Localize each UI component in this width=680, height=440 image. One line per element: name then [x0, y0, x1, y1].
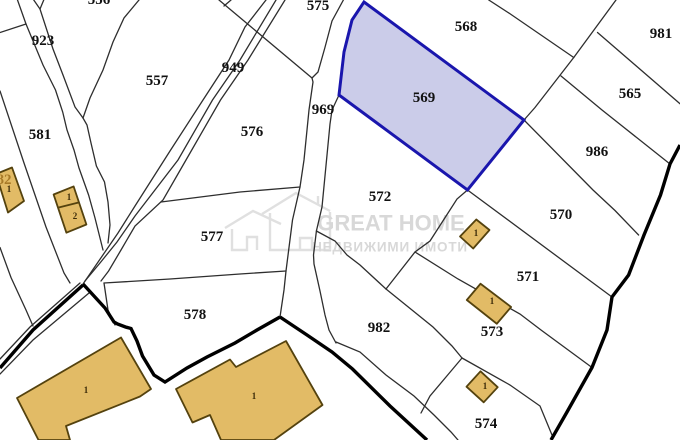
svg-text:969: 969	[312, 102, 335, 118]
svg-text:576: 576	[241, 124, 264, 140]
svg-text:1: 1	[474, 228, 479, 238]
svg-text:557: 557	[146, 73, 169, 89]
svg-text:981: 981	[650, 26, 673, 42]
svg-text:569: 569	[413, 90, 436, 106]
svg-text:578: 578	[184, 307, 207, 323]
svg-text:1: 1	[84, 385, 89, 395]
svg-text:556: 556	[88, 0, 111, 8]
svg-text:986: 986	[586, 144, 609, 160]
svg-text:570: 570	[550, 207, 573, 223]
svg-text:571: 571	[517, 269, 540, 285]
svg-text:1: 1	[490, 296, 495, 306]
svg-text:581: 581	[29, 127, 52, 143]
svg-text:923: 923	[32, 33, 55, 49]
svg-text:568: 568	[455, 19, 478, 35]
svg-text:574: 574	[475, 416, 498, 432]
svg-text:573: 573	[481, 324, 504, 340]
svg-text:572: 572	[369, 189, 392, 205]
svg-text:1: 1	[483, 381, 488, 391]
svg-text:577: 577	[201, 229, 224, 245]
svg-text:2: 2	[73, 211, 78, 221]
svg-text:GREAT HOME: GREAT HOME	[317, 211, 464, 236]
svg-text:949: 949	[222, 60, 245, 76]
svg-text:982: 982	[368, 320, 391, 336]
svg-text:565: 565	[619, 86, 642, 102]
svg-text:1: 1	[7, 184, 12, 194]
svg-text:575: 575	[307, 0, 330, 14]
svg-text:1: 1	[67, 192, 72, 202]
svg-text:1: 1	[252, 391, 257, 401]
